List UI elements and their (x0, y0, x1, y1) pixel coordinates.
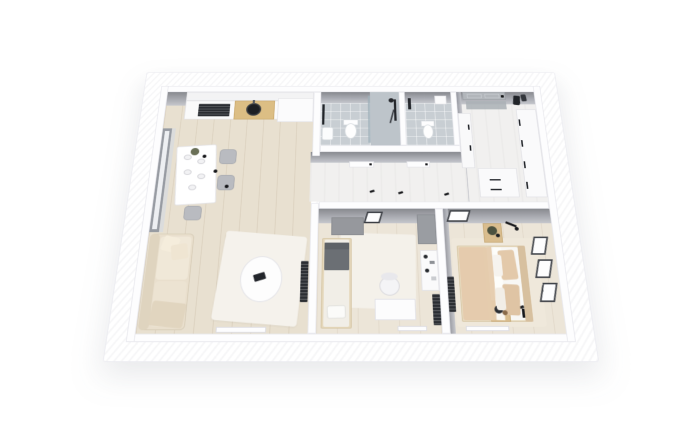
room-bedroom-single (316, 209, 442, 334)
desk-chair-back (381, 273, 398, 281)
room-bedroom-master (443, 209, 566, 334)
sofa-throw-blanket (148, 300, 187, 328)
cooktop-grates (198, 104, 231, 117)
washbasin (322, 127, 334, 140)
dresser-handle (470, 145, 472, 150)
wc-shelf (434, 96, 446, 105)
gray-cabinet (331, 217, 364, 235)
wall-radiator-strip (398, 326, 428, 331)
room-corridor (309, 152, 468, 202)
cabinet-handle (490, 179, 501, 180)
shelf-item (423, 255, 427, 259)
dining-chair (219, 149, 237, 164)
coat-bag (513, 95, 520, 105)
door-handle (425, 163, 427, 165)
sofa-pillow (171, 243, 189, 261)
front-door-panel (467, 94, 482, 98)
wall-radiator-strip (466, 326, 510, 331)
shelf-item (431, 276, 436, 280)
room-bathroom (320, 92, 400, 145)
wall-bedrooms-north (319, 202, 550, 209)
door-handle (444, 192, 449, 195)
kitchen-tap (253, 100, 255, 104)
perspective-scene (103, 72, 597, 360)
wc-wall-accent (408, 98, 411, 109)
shelf-item (425, 269, 429, 273)
plan-board (103, 72, 600, 362)
gray-wardrobe (417, 214, 437, 244)
nightstand-decor (496, 234, 500, 238)
room-hallway-entry (456, 92, 548, 202)
toilet-bowl (345, 123, 357, 139)
wall-picture-frame (531, 237, 548, 255)
leaning-picture-frame (446, 210, 470, 222)
floor-plan-3d-render (0, 0, 700, 440)
hall-cabinet-low (478, 168, 520, 197)
wall-bathrooms-south (320, 145, 461, 152)
wall-picture-frame (364, 212, 384, 224)
wc-toilet-bowl (422, 125, 433, 139)
wall-picture-frame (535, 259, 553, 278)
doormat (466, 101, 507, 109)
room-living-room-kitchen (136, 92, 314, 334)
pendant-light (213, 169, 217, 172)
nightstand-decor (502, 310, 508, 315)
cabinet-handle (491, 189, 502, 190)
wall-picture-frame (540, 283, 558, 302)
dresser-handle (468, 125, 470, 130)
front-door-panel (484, 94, 499, 98)
room-wc (405, 92, 455, 145)
fridge-cabinet (277, 98, 314, 122)
wall-inner-face-corridor (310, 152, 465, 163)
shower-head (389, 98, 394, 102)
single-bed-pillow (327, 305, 346, 319)
blanket-fold (325, 243, 350, 250)
outer-wall-bottom (126, 334, 576, 343)
shelf-item (430, 261, 435, 264)
door-handle (369, 163, 371, 165)
wall-radiator-strip (216, 327, 267, 333)
door-handle (398, 191, 403, 194)
door-handle (370, 190, 375, 193)
desk (375, 299, 417, 320)
radiator-grille (300, 261, 309, 302)
wall-lamp-shade (514, 227, 518, 231)
dining-chair (183, 206, 202, 220)
front-door-handle (501, 95, 504, 97)
towel-rail (322, 104, 325, 124)
